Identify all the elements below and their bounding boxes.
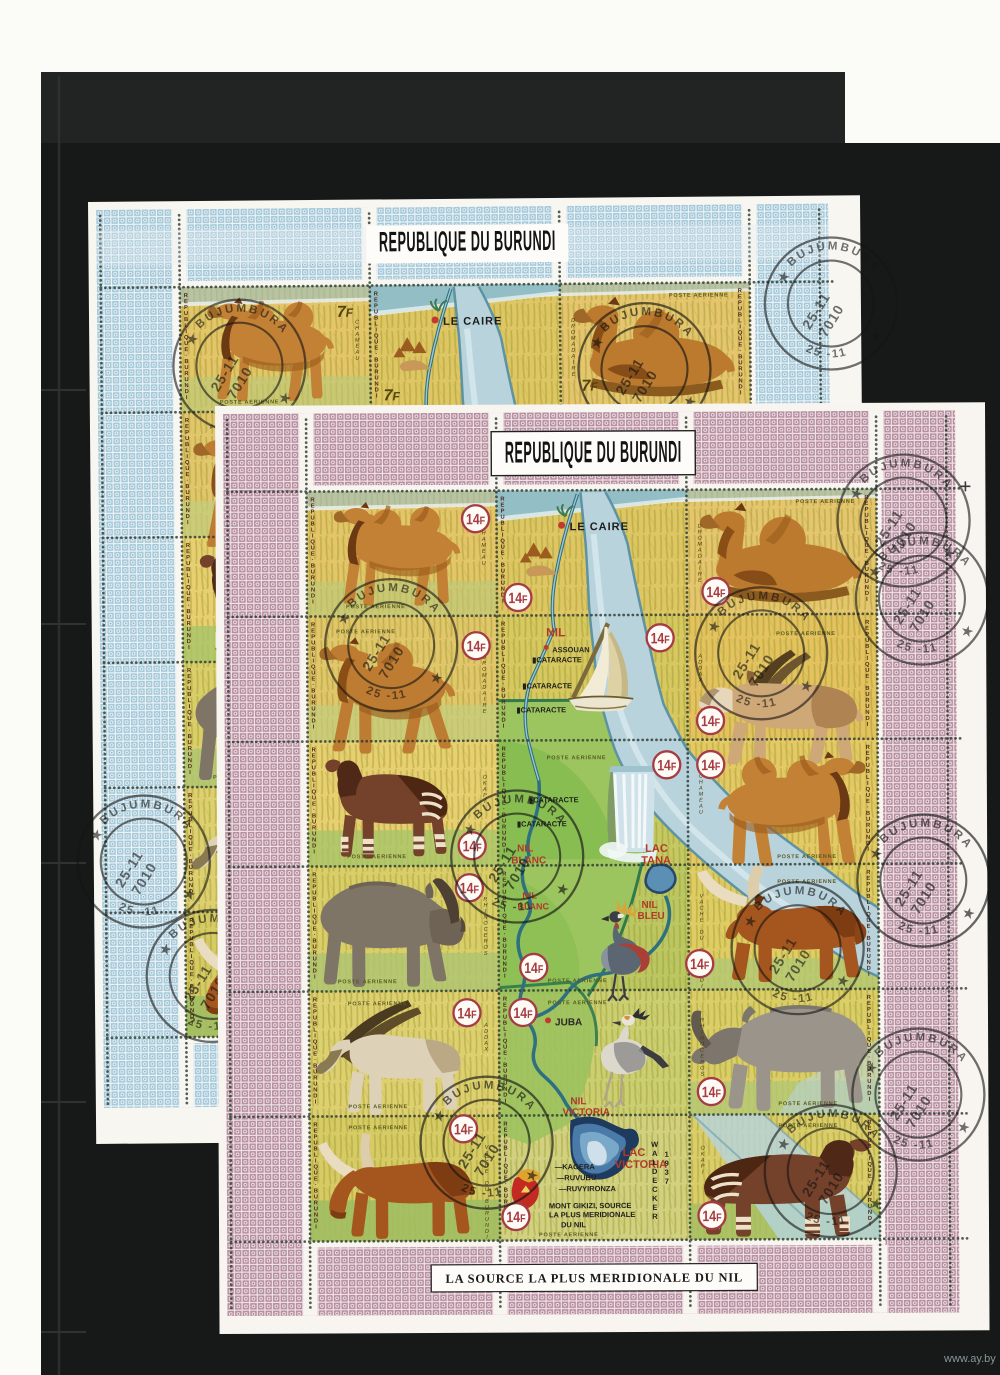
svg-text:REPUBLIQUE DU BURUNDI: REPUBLIQUE DU BURUNDI — [505, 434, 682, 469]
svg-text:LA SOURCE LA PLUS MERIDIONALE: LA SOURCE LA PLUS MERIDIONALE DU NIL — [445, 1270, 743, 1285]
svg-text:www.ay.by: www.ay.by — [943, 1353, 996, 1365]
svg-text:REPUBLIQUE DU BURUNDI: REPUBLIQUE DU BURUNDI — [379, 224, 556, 258]
